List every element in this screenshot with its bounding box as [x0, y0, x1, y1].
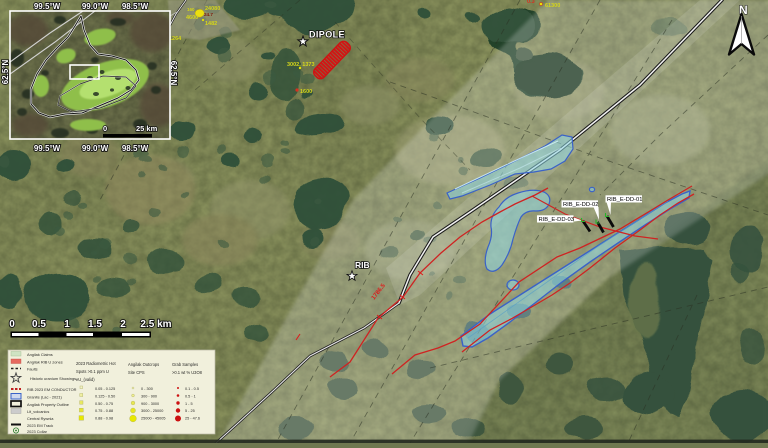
svg-text:0.125 - 0.50: 0.125 - 0.50: [95, 395, 115, 399]
svg-text:25000 - 45005: 25000 - 45005: [141, 417, 166, 421]
svg-text:RIB_E-DD-03: RIB_E-DD-03: [539, 217, 574, 223]
svg-text:Faults: Faults: [27, 367, 38, 372]
svg-text:0.5: 0.5: [32, 319, 46, 330]
svg-text:Grab Samples: Grab Samples: [172, 362, 198, 367]
svg-text:1: 1: [64, 319, 70, 330]
svg-text:24.7: 24.7: [204, 12, 213, 17]
svg-text:25 - 47.6: 25 - 47.6: [185, 417, 200, 421]
svg-text:0.5 - 1: 0.5 - 1: [185, 395, 196, 399]
svg-text:1.5: 1.5: [88, 319, 102, 330]
svg-text:3000 - 25000: 3000 - 25000: [141, 409, 163, 413]
svg-text:Angilak RIB U zones: Angilak RIB U zones: [27, 360, 63, 365]
svg-text:1264: 1264: [169, 36, 182, 42]
svg-text:300 - 900: 300 - 900: [141, 395, 157, 399]
svg-text:0.1 - 0.5: 0.1 - 0.5: [185, 387, 199, 391]
svg-text:RIB: RIB: [355, 260, 370, 270]
svg-text:4600: 4600: [186, 15, 198, 21]
svg-text:0.05 - 0.125: 0.05 - 0.125: [95, 387, 115, 391]
svg-text:900 - 3000: 900 - 3000: [141, 402, 159, 406]
svg-text:Lit_volcanics: Lit_volcanics: [27, 409, 49, 414]
svg-text:2023 Radiometric Hot: 2023 Radiometric Hot: [76, 361, 116, 366]
svg-text:5 - 25: 5 - 25: [185, 409, 195, 413]
svg-text:0: 0: [103, 124, 107, 133]
svg-text:160: 160: [187, 7, 195, 12]
svg-text:RIB_E-DD-01: RIB_E-DD-01: [607, 197, 642, 203]
svg-text:0.88 - 0.98: 0.88 - 0.98: [95, 417, 113, 421]
svg-text:Granite (Lac - 2021): Granite (Lac - 2021): [27, 395, 63, 400]
svg-text:2: 2: [120, 319, 126, 330]
svg-text:>0.1 wt % U3O8: >0.1 wt % U3O8: [172, 370, 203, 375]
svg-text:Angilak Property Outline: Angilak Property Outline: [27, 402, 69, 407]
svg-text:Spots >0.1 ppm U: Spots >0.1 ppm U: [76, 369, 109, 374]
svg-text:99.5°W: 99.5°W: [34, 2, 61, 11]
svg-text:2023 Collar: 2023 Collar: [27, 429, 48, 434]
svg-text:98.5°W: 98.5°W: [122, 2, 149, 11]
svg-text:0.75 - 0.88: 0.75 - 0.88: [95, 409, 113, 413]
svg-text:0: 0: [9, 319, 15, 330]
svg-text:RIB_E-DD-02: RIB_E-DD-02: [563, 202, 598, 208]
svg-text:2023 EM Track: 2023 EM Track: [27, 423, 53, 428]
svg-text:eU_(valid): eU_(valid): [76, 377, 95, 382]
svg-text:99.0°W: 99.0°W: [82, 144, 109, 153]
svg-text:Angilak Claims: Angilak Claims: [27, 352, 53, 357]
svg-text:99.0°W: 99.0°W: [82, 2, 109, 11]
svg-text:61300: 61300: [545, 3, 560, 9]
svg-text:0.50 - 0.75: 0.50 - 0.75: [95, 402, 113, 406]
svg-text:RIB 2023 EM CONDUCTOR: RIB 2023 EM CONDUCTOR: [27, 387, 77, 392]
svg-text:1600: 1600: [300, 89, 312, 95]
svg-text:0.3: 0.3: [527, 0, 535, 5]
svg-text:62.5°N: 62.5°N: [1, 60, 10, 85]
svg-text:Site CPS: Site CPS: [128, 370, 145, 375]
svg-text:Historic uranium Showings: Historic uranium Showings: [30, 376, 76, 381]
svg-text:1 - 5: 1 - 5: [185, 402, 193, 406]
svg-text:25 km: 25 km: [136, 124, 158, 133]
svg-text:98.5°W: 98.5°W: [122, 144, 149, 153]
svg-text:Central Rywnia: Central Rywnia: [27, 416, 54, 421]
svg-text:DIPOLE: DIPOLE: [309, 30, 345, 40]
svg-text:0 - 300: 0 - 300: [141, 387, 153, 391]
svg-text:Angilak Outcrops: Angilak Outcrops: [128, 362, 159, 367]
svg-text:99.5°W: 99.5°W: [34, 144, 61, 153]
svg-text:1482: 1482: [205, 21, 217, 27]
svg-text:2.5 km: 2.5 km: [140, 319, 171, 330]
